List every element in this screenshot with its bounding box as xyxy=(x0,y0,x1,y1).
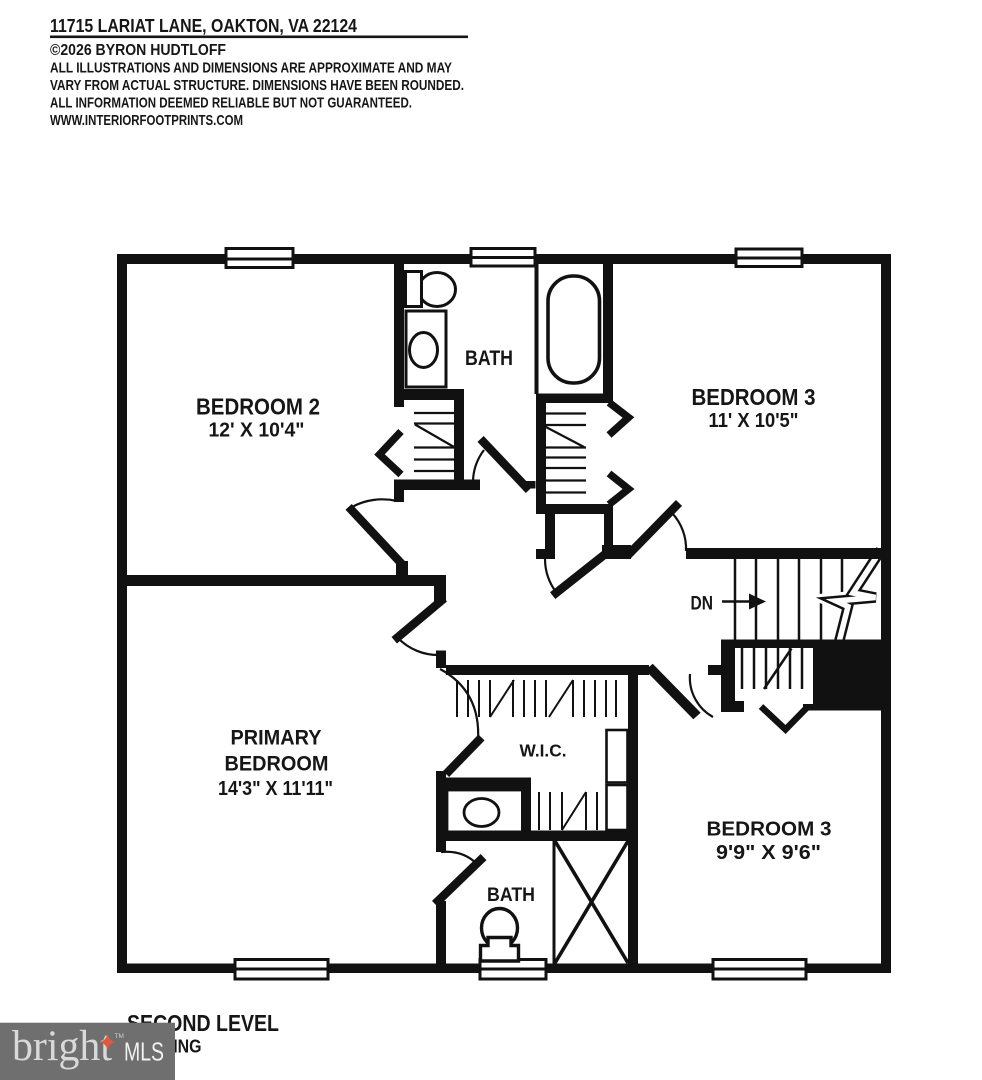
svg-text:MLS: MLS xyxy=(124,1037,164,1067)
svg-text:ALL INFORMATION DEEMED RELIABL: ALL INFORMATION DEEMED RELIABLE BUT NOT … xyxy=(50,95,412,112)
svg-text:BATH: BATH xyxy=(487,884,535,906)
svg-text:BEDROOM 3: BEDROOM 3 xyxy=(707,818,832,841)
svg-text:BEDROOM 3: BEDROOM 3 xyxy=(692,384,816,410)
svg-text:BEDROOM 2: BEDROOM 2 xyxy=(196,394,320,420)
svg-text:ALL ILLUSTRATIONS AND DIMENSIO: ALL ILLUSTRATIONS AND DIMENSIONS ARE APP… xyxy=(50,60,452,77)
svg-text:DN: DN xyxy=(691,594,714,615)
svg-text:BEDROOM: BEDROOM xyxy=(225,752,329,776)
svg-text:VARY FROM ACTUAL STRUCTURE. DI: VARY FROM ACTUAL STRUCTURE. DIMENSIONS H… xyxy=(50,77,464,94)
svg-text:11715 LARIAT LANE, OAKTON, VA: 11715 LARIAT LANE, OAKTON, VA 22124 xyxy=(50,15,358,36)
svg-text:BATH: BATH xyxy=(465,347,513,370)
svg-text:PRIMARY: PRIMARY xyxy=(231,726,322,750)
svg-text:W.I.C.: W.I.C. xyxy=(520,741,567,761)
svg-text:WWW.INTERIORFOOTPRINTS.COM: WWW.INTERIORFOOTPRINTS.COM xyxy=(50,112,243,129)
svg-text:12' X 10'4": 12' X 10'4" xyxy=(209,419,305,442)
svg-text:11' X 10'5": 11' X 10'5" xyxy=(709,409,799,432)
svg-text:9'9" X 9'6": 9'9" X 9'6" xyxy=(716,841,821,864)
svg-text:bright: bright xyxy=(12,1023,112,1070)
svg-text:TM: TM xyxy=(115,1033,124,1040)
svg-text:14'3" X 11'11": 14'3" X 11'11" xyxy=(218,777,333,800)
svg-text:©2026 BYRON HUDTLOFF: ©2026 BYRON HUDTLOFF xyxy=(50,42,226,59)
